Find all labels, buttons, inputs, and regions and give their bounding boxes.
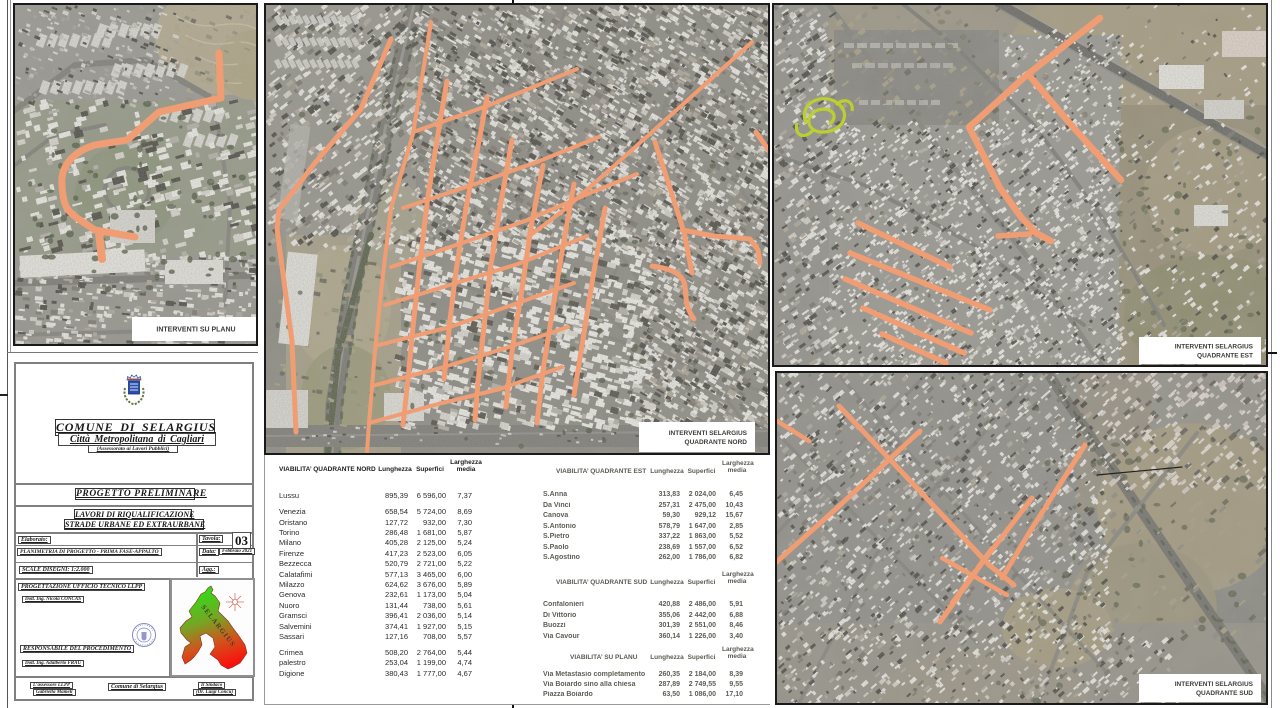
svg-text:QUADRANTE EST: QUADRANTE EST (1197, 353, 1253, 360)
svg-text:INTERVENTI SELARGIUS: INTERVENTI SELARGIUS (669, 430, 748, 437)
svg-text:INTERVENTI SELARGIUS: INTERVENTI SELARGIUS (1175, 681, 1254, 688)
svg-text:QUADRANTE SUD: QUADRANTE SUD (1196, 690, 1253, 697)
svg-text:QUADRANTE NORD: QUADRANTE NORD (685, 439, 748, 446)
svg-text:INTERVENTI SU PLANU: INTERVENTI SU PLANU (156, 327, 235, 334)
svg-text:INTERVENTI SELARGIUS: INTERVENTI SELARGIUS (1175, 344, 1254, 351)
